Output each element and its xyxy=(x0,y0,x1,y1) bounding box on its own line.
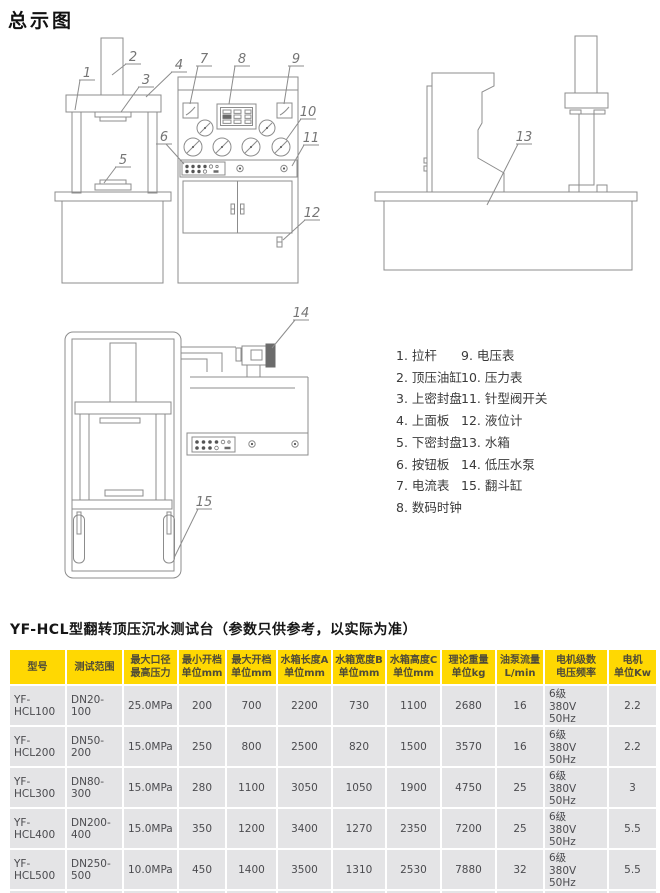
spec-cell: 1100 xyxy=(227,768,276,807)
parts-list-item: 10. 压力表 xyxy=(461,367,591,389)
spec-cell: 1050 xyxy=(333,768,385,807)
spec-cell: 1900 xyxy=(387,768,440,807)
pump-pipes xyxy=(181,347,308,455)
front-view-cabinet xyxy=(178,77,298,283)
callout-label: 4 xyxy=(175,58,183,73)
spec-cell: 15.0MPa xyxy=(124,809,177,848)
spec-header-cell: 最大口径 最高压力 xyxy=(124,650,177,684)
spec-cell: 450 xyxy=(179,850,225,889)
side-button-strip xyxy=(187,433,308,455)
spec-cell: 730 xyxy=(333,686,385,725)
callout-label: 3 xyxy=(142,73,150,88)
callout-label: 2 xyxy=(129,50,137,65)
spec-table-row: YF-HCL100DN20-10025.0MPa2007002200730110… xyxy=(10,686,656,725)
parts-list-item: 13. 水箱 xyxy=(461,432,591,454)
catalog-page: 总示图 xyxy=(0,0,660,893)
callout-label: 14 xyxy=(293,306,310,321)
spec-cell: 2.2 xyxy=(609,686,656,725)
low-pressure-pump xyxy=(236,344,275,377)
spec-cell: 2200 xyxy=(278,686,331,725)
spec-cell: 6级 380V 50Hz xyxy=(545,768,607,807)
tipping-cylinders xyxy=(74,512,175,563)
spec-header-cell: 最大开档 单位mm xyxy=(227,650,276,684)
press-plan xyxy=(72,343,172,509)
spec-cell: 200 xyxy=(179,686,225,725)
spec-cell: DN200-400 xyxy=(67,809,122,848)
spec-table-row: YF-HCL400DN200-40015.0MPa350120034001270… xyxy=(10,809,656,848)
spec-cell: 1400 xyxy=(227,850,276,889)
spec-cell: YF-HCL500 xyxy=(10,850,65,889)
top-plate xyxy=(66,95,161,112)
spec-cell: 4750 xyxy=(442,768,495,807)
spec-cell: 1100 xyxy=(387,686,440,725)
section-heading: YF-HCL型翻转顶压沉水测试台（参数只供参考，以实际为准） xyxy=(10,619,417,639)
spec-cell: 6级 380V 50Hz xyxy=(545,850,607,889)
spec-header-cell: 测试范围 xyxy=(67,650,122,684)
parts-list-item: 14. 低压水泵 xyxy=(461,454,591,476)
spec-cell: YF-HCL100 xyxy=(10,686,65,725)
spec-cell: 5.5 xyxy=(609,809,656,848)
spec-cell: 32 xyxy=(497,850,543,889)
spec-cell: 250 xyxy=(179,727,225,766)
spec-header-cell: 型号 xyxy=(10,650,65,684)
cabinet-side-profile xyxy=(432,73,504,192)
parts-list-item: 9. 电压表 xyxy=(461,345,591,367)
press-side xyxy=(565,36,608,192)
cabinet-doors xyxy=(183,181,292,233)
spec-cell: 25 xyxy=(497,768,543,807)
spec-cell: 2.2 xyxy=(609,727,656,766)
spec-cell: 7880 xyxy=(442,850,495,889)
callout-label: 12 xyxy=(304,206,321,221)
top-cylinder xyxy=(101,38,123,95)
spec-cell: 15.0MPa xyxy=(124,727,177,766)
spec-cell: 1500 xyxy=(387,727,440,766)
spec-cell: 2350 xyxy=(387,809,440,848)
spec-cell: 7200 xyxy=(442,809,495,848)
spec-cell: DN250-500 xyxy=(67,850,122,889)
spec-cell: 700 xyxy=(227,686,276,725)
spec-cell: 2680 xyxy=(442,686,495,725)
spec-table-row: YF-HCL500DN250-50010.0MPa450140035001310… xyxy=(10,850,656,889)
spec-cell: 3400 xyxy=(278,809,331,848)
spec-table-body: YF-HCL100DN20-10025.0MPa2007002200730110… xyxy=(10,686,656,893)
spec-cell: 1310 xyxy=(333,850,385,889)
spec-table: 型号测试范围最大口径 最高压力最小开档 单位mm最大开档 单位mm水箱长度A 单… xyxy=(8,648,658,893)
base-box xyxy=(62,201,163,283)
ammeter xyxy=(183,103,198,118)
spec-cell: 800 xyxy=(227,727,276,766)
parts-list-item: 15. 翻斗缸 xyxy=(461,475,591,497)
spec-cell: YF-HCL200 xyxy=(10,727,65,766)
button-panel xyxy=(180,160,297,177)
spec-table-head: 型号测试范围最大口径 最高压力最小开档 单位mm最大开档 单位mm水箱长度A 单… xyxy=(10,650,656,684)
spec-cell: 3050 xyxy=(278,768,331,807)
spec-header-cell: 最小开档 单位mm xyxy=(179,650,225,684)
spec-cell: 1270 xyxy=(333,809,385,848)
parts-list-column-2: 9. 电压表10. 压力表11. 针型阀开关12. 液位计13. 水箱14. 低… xyxy=(461,345,591,497)
spec-cell: 16 xyxy=(497,686,543,725)
digital-clock xyxy=(217,104,256,129)
spec-cell: 6级 380V 50Hz xyxy=(545,809,607,848)
spec-cell: 10.0MPa xyxy=(124,850,177,889)
callout-label: 9 xyxy=(292,52,300,67)
callout-label: 8 xyxy=(238,52,246,67)
spec-cell: DN80-300 xyxy=(67,768,122,807)
tank-top-plate xyxy=(375,192,637,201)
spec-header-cell: 水箱高度C 单位mm xyxy=(387,650,440,684)
callout-label: 7 xyxy=(200,52,209,67)
spec-table-row: YF-HCL200DN50-20015.0MPa2508002500820150… xyxy=(10,727,656,766)
callout-label: 10 xyxy=(300,105,317,120)
callout-label: 11 xyxy=(303,131,320,146)
spec-header-cell: 油泵流量 L/min xyxy=(497,650,543,684)
spec-cell: DN50-200 xyxy=(67,727,122,766)
spec-table-row: YF-HCL300DN80-30015.0MPa2801100305010501… xyxy=(10,768,656,807)
upper-seal-plate xyxy=(95,112,131,117)
callout-label: 15 xyxy=(196,495,213,510)
spec-cell: 3 xyxy=(609,768,656,807)
lower-seal-plate xyxy=(95,184,131,190)
spec-cell: 5.5 xyxy=(609,850,656,889)
callout-label: 5 xyxy=(119,153,127,168)
voltmeter xyxy=(277,103,292,118)
spec-cell: 280 xyxy=(179,768,225,807)
spec-cell: 2530 xyxy=(387,850,440,889)
spec-cell: 350 xyxy=(179,809,225,848)
spec-cell: 25 xyxy=(497,809,543,848)
spec-cell: DN20-100 xyxy=(67,686,122,725)
spec-header-cell: 水箱宽度B 单位mm xyxy=(333,650,385,684)
tie-rod-right xyxy=(148,112,157,193)
spec-cell: 2500 xyxy=(278,727,331,766)
water-tank-side xyxy=(384,201,632,270)
spec-cell: 25.0MPa xyxy=(124,686,177,725)
spec-cell: 15.0MPa xyxy=(124,768,177,807)
spec-cell: 16 xyxy=(497,727,543,766)
callout-label: 6 xyxy=(160,130,168,145)
spec-cell: 6级 380V 50Hz xyxy=(545,727,607,766)
spec-cell: 3500 xyxy=(278,850,331,889)
spec-header-cell: 电机级数 电压频率 xyxy=(545,650,607,684)
plan-view: 14 15 xyxy=(65,306,309,578)
parts-list-item: 11. 针型阀开关 xyxy=(461,388,591,410)
side-view: 13 xyxy=(375,36,637,270)
technical-drawing: 1 2 3 4 5 6 7 8 9 10 11 12 xyxy=(0,20,660,600)
spec-header-cell: 理论重量 单位kg xyxy=(442,650,495,684)
parts-list-item: 12. 液位计 xyxy=(461,410,591,432)
spec-cell: 820 xyxy=(333,727,385,766)
callout-label: 1 xyxy=(83,66,91,81)
callout-label: 13 xyxy=(516,130,533,145)
level-gauge xyxy=(277,237,282,247)
spec-cell: 3570 xyxy=(442,727,495,766)
spec-cell: 6级 380V 50Hz xyxy=(545,686,607,725)
spec-cell: YF-HCL300 xyxy=(10,768,65,807)
tie-rod-left xyxy=(72,112,81,193)
parts-list-item: 8. 数码时钟 xyxy=(396,497,506,519)
spec-cell: 1200 xyxy=(227,809,276,848)
spec-header-cell: 电机 单位Kw xyxy=(609,650,656,684)
spec-header-cell: 水箱长度A 单位mm xyxy=(278,650,331,684)
spec-cell: YF-HCL400 xyxy=(10,809,65,848)
